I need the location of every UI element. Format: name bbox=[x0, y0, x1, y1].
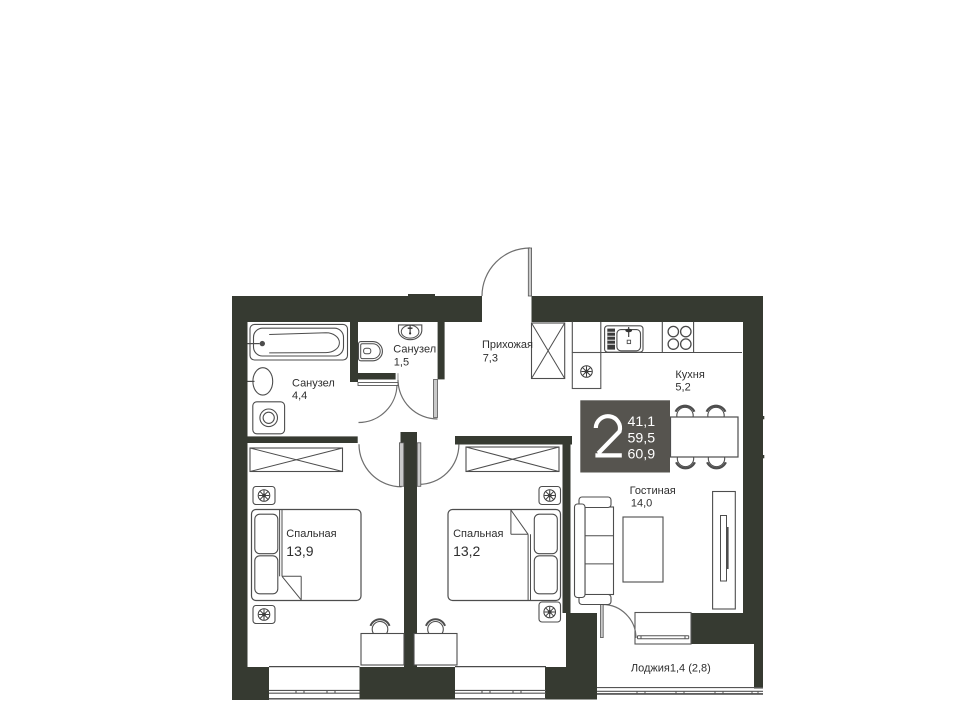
svg-text:59,5: 59,5 bbox=[628, 430, 656, 446]
svg-text:Спальная: Спальная bbox=[286, 528, 336, 540]
svg-text:Кухня: Кухня bbox=[675, 369, 704, 381]
svg-text:5,2: 5,2 bbox=[675, 381, 690, 393]
svg-text:1,5: 1,5 bbox=[394, 356, 409, 368]
svg-text:Лоджия1,4 (2,8): Лоджия1,4 (2,8) bbox=[631, 662, 711, 674]
svg-text:41,1: 41,1 bbox=[628, 414, 656, 430]
svg-text:Санузел: Санузел bbox=[292, 377, 335, 389]
svg-text:13,2: 13,2 bbox=[453, 543, 480, 559]
svg-text:Гостиная: Гостиная bbox=[630, 485, 676, 497]
svg-text:13,9: 13,9 bbox=[286, 543, 313, 559]
svg-text:Прихожая: Прихожая bbox=[482, 339, 533, 351]
svg-text:14,0: 14,0 bbox=[631, 498, 652, 510]
svg-text:7,3: 7,3 bbox=[483, 352, 498, 364]
svg-text:4,4: 4,4 bbox=[292, 390, 307, 402]
svg-text:60,9: 60,9 bbox=[628, 447, 656, 463]
svg-text:Санузел: Санузел bbox=[393, 343, 436, 355]
svg-text:Спальная: Спальная bbox=[453, 528, 503, 540]
